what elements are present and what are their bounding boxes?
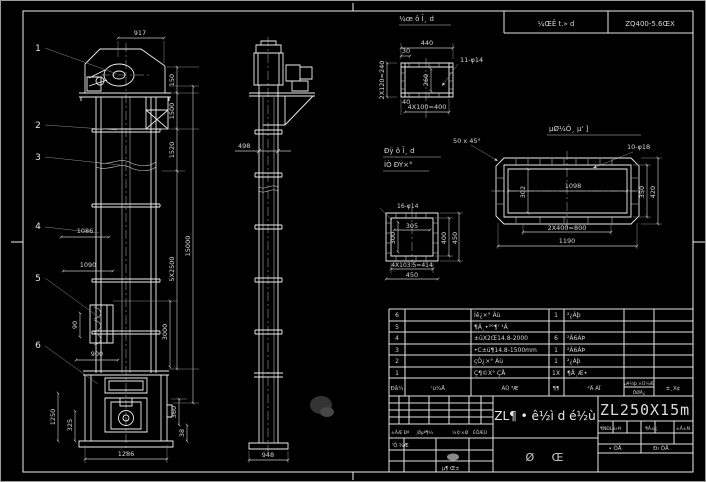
dim-1090: 1090 <box>80 261 97 269</box>
dim-1250: 1250 <box>49 409 57 426</box>
dim-1520: 1520 <box>168 142 176 159</box>
rev-header-mark: ±ÅÆ Ðª <box>391 429 409 436</box>
dim-4x100-400: 4X100=400 <box>408 103 447 111</box>
bom-mat: ²¿Áþ <box>567 358 581 365</box>
bom-header-dwg: 'ü¼Å <box>431 385 445 392</box>
dim-420: 420 <box>649 186 657 198</box>
outlet-holes-note: 10-φ18 <box>627 143 650 151</box>
dim-948: 948 <box>262 451 274 459</box>
dim-3000: 3000 <box>161 324 169 341</box>
scale-label: ±Å±Ñ <box>676 425 690 432</box>
rev-header-file: ¸Øµª¶¼ <box>415 429 434 436</box>
note-right-cell: ZQ400-5.6ŒX <box>625 20 675 28</box>
dim-2x400-800: 2X400=800 <box>548 224 587 232</box>
inlet-holes-note: 11-φ14 <box>460 56 483 64</box>
bom-name: ¶Ä¸•³°¶' ¹Ä <box>474 324 509 331</box>
bom-no: 3 <box>395 347 399 354</box>
bom-qty: 1 <box>554 358 558 365</box>
bom-name: ±üX2Œ14.8-2000 <box>474 335 528 342</box>
bom-no: 5 <box>395 324 399 331</box>
drawing-title: ZL¶ • ê½ì d é½ù <box>494 409 595 423</box>
smudge-mark-2 <box>320 407 334 417</box>
dim-260: 260 <box>422 74 430 86</box>
balloon-1: 1 <box>35 44 41 54</box>
stage-mark-label: ¶ÑÐL±ıĦ <box>600 425 621 432</box>
dim-350: 350 <box>638 186 646 198</box>
bom-header-remark: ±¸X¢ <box>666 386 681 392</box>
dim-1086: 1086 <box>77 227 94 235</box>
square-holes-note: 16-φ14 <box>397 203 419 210</box>
bom-mat: ²¿Áþ <box>567 312 581 319</box>
rev-header-date: ÈÕÆÚ <box>473 428 487 436</box>
dim-325: 325 <box>66 419 74 431</box>
dim-90: 90 <box>71 321 79 329</box>
bom-mat: ²Ä6ÁÞ <box>567 335 585 342</box>
bom-name: çÒ¿×° Áù <box>474 358 503 365</box>
dim-30: 30 <box>402 47 410 55</box>
square-flange-detail: Ðÿ ô Ī¸ d ÍÒ ÐÝ×° 16-φ14 305 300 400 450… <box>380 146 463 279</box>
dim-900: 900 <box>91 350 103 358</box>
dim-38: 38 <box>178 429 186 437</box>
side-elevation-view: 498 948 <box>235 41 334 460</box>
note-left-cell: ¼ŒÊ t.» d <box>538 19 575 28</box>
sheet-page-label: Ðı ÕÅ <box>653 445 669 452</box>
dim-4x103: 4X103.5=414 <box>391 262 433 269</box>
drawing-number: ZL250X15m <box>600 401 690 419</box>
dim-450-bottom: 450 <box>406 271 418 279</box>
balloon-3: 3 <box>35 153 41 163</box>
top-note-bar: ¼ŒÊ t.» d ZQ400-5.6ŒX <box>538 19 675 28</box>
balloon-2: 2 <box>35 121 41 131</box>
sheet-type-label: Ø Œ <box>526 451 571 464</box>
balloon-6: 6 <box>35 341 41 351</box>
bom-header-wt1: µ¥¼þ ×Ü¼Æ <box>624 380 655 387</box>
dim-1098: 1098 <box>565 182 582 190</box>
bom-mat: ¶Å¸Æ• <box>567 370 587 377</box>
bom-table: 6 Íê¿×° Áù 1 ²¿Áþ 5 ¶Ä¸•³°¶' ¹Ä 4 ±üX2Œ1… <box>389 309 693 472</box>
bom-qty: 1X <box>552 370 560 377</box>
dim-917: 917 <box>134 29 146 37</box>
bom-header-wt2: ÖØÁ¿ <box>633 389 646 396</box>
square-title-1: Ðÿ ô Ī¸ d <box>384 146 415 155</box>
dim-15000: 15000 <box>184 236 192 257</box>
bom-no: 1 <box>395 370 399 377</box>
inlet-title: ¼œ ô Ī¸ d <box>399 14 434 23</box>
bom-no: 6 <box>395 312 399 319</box>
outlet-title: µØ¼Ò¸ µ' ] <box>549 124 589 133</box>
cad-canvas: 1 2 3 4 5 6 917 150 1500 1520 5X2500 150… <box>1 1 706 482</box>
bom-no: 4 <box>395 335 399 342</box>
bom-no: 2 <box>395 358 399 365</box>
title-block: ±ÅÆ Ðª ¸Øµª¶¼ ¼©×Ø ÈÕÆÚ 'Ò ¾Æ µ¶ Œ± ZL¶ … <box>389 396 693 472</box>
weight-label: ¶Å±ç <box>645 425 658 432</box>
dim-450-right: 450 <box>451 232 459 244</box>
bom-name: Íê¿×° Áù <box>474 312 501 319</box>
dim-150: 150 <box>168 74 176 86</box>
bom-mat: ²Ä6ÁÞ <box>567 347 585 354</box>
dim-1190: 1190 <box>559 237 576 245</box>
dim-440: 440 <box>421 39 433 47</box>
bom-name: Ç¶©X° ÇÅ <box>474 370 506 377</box>
rev-header-sign: ¼©×Ø <box>452 429 469 436</box>
bom-header-name: ÃÛ ³Æ <box>501 385 518 392</box>
dim-498: 498 <box>238 142 250 150</box>
bom-header-no: Ðå¼ <box>391 385 405 392</box>
dim-400: 400 <box>440 232 448 244</box>
dim-1500: 1500 <box>168 103 176 120</box>
bom-qty: 6 <box>554 335 558 342</box>
balloon-5: 5 <box>35 274 41 284</box>
bom-header-qty: ¶¶ <box>553 386 560 392</box>
dim-300: 300 <box>389 232 397 244</box>
designer-label: 'Ò ¾Æ <box>392 442 409 449</box>
chamfer-note: 50 x 45° <box>453 137 481 145</box>
dim-2x120-240: 2X120=240 <box>378 61 386 100</box>
dim-1286: 1286 <box>118 450 135 458</box>
square-title-2: ÍÒ ÐÝ×° <box>384 160 412 169</box>
bom-qty: 1 <box>554 312 558 319</box>
signature-smudge <box>447 454 459 461</box>
balloon-4: 4 <box>35 222 41 232</box>
bom-qty: 1 <box>554 347 558 354</box>
dim-305: 305 <box>406 222 418 230</box>
bom-name: •C±ü¶14.8-1500mm <box>474 347 537 354</box>
bom-header-mat: ²Ä ÁÏ <box>587 385 600 392</box>
outlet-flange-detail: µØ¼Ò¸ µ' ] 50 x 45° 10-φ18 1098 302 350 … <box>453 124 662 249</box>
dim-360: 360 <box>170 406 178 418</box>
sheet-total-label: • ÕÅ <box>608 445 621 452</box>
drawing-sheet: 1 2 3 4 5 6 917 150 1500 1520 5X2500 150… <box>0 0 706 482</box>
dim-5x2500: 5X2500 <box>168 256 176 281</box>
inlet-flange-detail: ¼œ ô Ī¸ d 440 30 2X120=240 260 11-φ14 40… <box>378 14 483 115</box>
date-label: µ¶ Œ± <box>442 466 460 472</box>
dim-302: 302 <box>519 186 527 198</box>
